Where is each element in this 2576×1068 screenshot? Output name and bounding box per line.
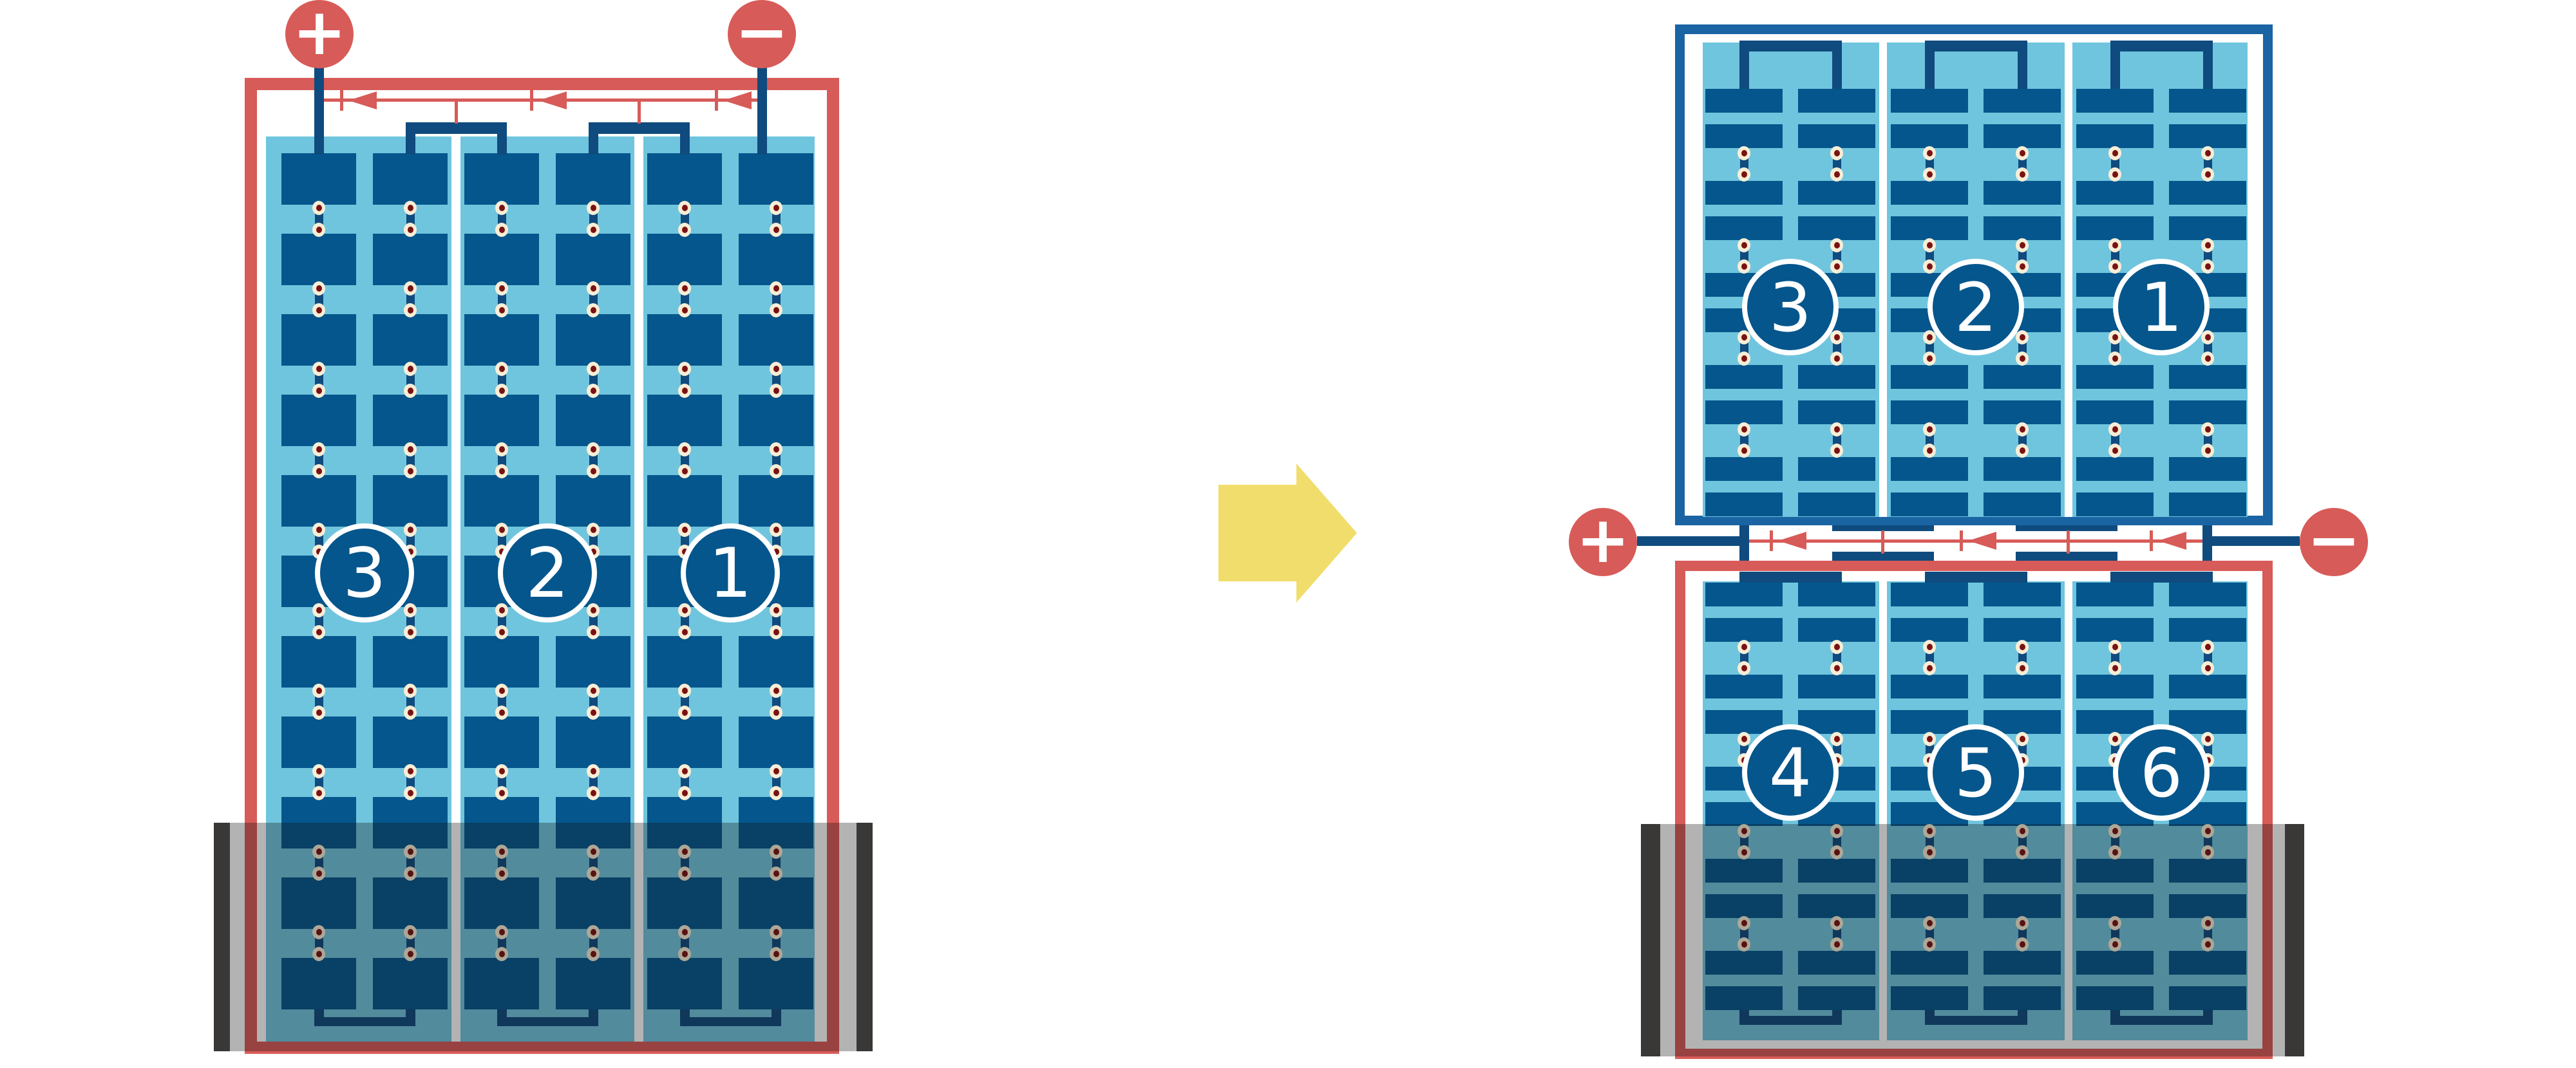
solar-cell <box>556 234 630 285</box>
solder-dot-core <box>682 205 688 211</box>
solder-dot-core <box>773 688 779 694</box>
solder-dot-core <box>1927 334 1933 341</box>
string-number-label: 2 <box>526 539 569 608</box>
solder-dot-core <box>1741 426 1747 433</box>
solder-dot-core <box>591 688 596 694</box>
solder-dot-core <box>2205 263 2211 270</box>
solder-dot-core <box>2112 355 2118 362</box>
solder-dot-core <box>316 709 322 716</box>
solder-dot-core <box>2205 242 2211 248</box>
solder-dot-core <box>591 227 596 233</box>
solder-dot-core <box>1927 263 1933 270</box>
string-link-leg <box>406 134 415 155</box>
solder-dot-core <box>591 205 596 211</box>
bypass-diode-icon-bar <box>530 90 533 111</box>
solder-dot-core <box>591 527 596 533</box>
string-circle: 3 <box>315 523 414 623</box>
solder-dot-core <box>499 527 505 533</box>
half-cell <box>1705 365 1783 389</box>
solar-cell <box>556 314 630 366</box>
solar-panel-shading-diagram: +−321321456+− <box>0 0 2576 1068</box>
solder-dot-core <box>2112 665 2118 671</box>
solder-dot-core <box>591 366 596 372</box>
string-number-label: 3 <box>1769 274 1812 341</box>
half-cell <box>2169 618 2246 642</box>
solder-dot-core <box>2205 665 2211 671</box>
solar-cell <box>647 475 722 527</box>
half-cell <box>1705 216 1783 240</box>
solder-dot-core <box>499 227 505 233</box>
string-number-label: 3 <box>343 539 386 608</box>
solder-dot-core <box>499 366 505 372</box>
shade-edge-bar <box>214 823 230 1051</box>
solder-dot-core <box>682 709 688 716</box>
solder-dot-core <box>682 790 688 796</box>
solder-dot-core <box>2020 334 2025 341</box>
solar-cell <box>281 717 356 768</box>
half-cell <box>1891 583 1968 606</box>
half-cell <box>1705 618 1783 642</box>
solder-dot-core <box>682 468 688 474</box>
solder-dot-core <box>773 768 779 774</box>
solder-dot-core <box>591 790 596 796</box>
solder-dot-core <box>408 768 413 774</box>
solder-dot-core <box>1834 171 1840 178</box>
half-cell <box>1705 583 1783 606</box>
solder-dot-core <box>316 307 322 314</box>
solder-dot-core <box>408 709 413 716</box>
solder-dot-core <box>1741 665 1747 671</box>
solar-cell <box>647 153 722 205</box>
solder-dot-core <box>499 388 505 394</box>
solar-cell <box>739 395 813 446</box>
string-top-link-leg <box>1832 52 1842 89</box>
solar-cell <box>281 636 356 688</box>
negative-terminal-icon: − <box>728 0 796 68</box>
solder-dot-core <box>316 768 322 774</box>
solder-dot-core <box>2205 334 2211 341</box>
half-cell <box>2076 583 2154 606</box>
half-cell <box>1891 124 1968 148</box>
solder-dot-core <box>2112 736 2118 742</box>
solder-dot-core <box>682 607 688 614</box>
half-cell <box>1705 492 1783 516</box>
half-cell <box>1891 618 1968 642</box>
string-circle: 1 <box>681 523 780 623</box>
half-cell <box>2076 181 2154 205</box>
positive-wire <box>1637 536 1740 546</box>
half-cell <box>1798 400 1875 424</box>
solder-dot-core <box>408 366 413 372</box>
string-circle: 6 <box>2113 724 2210 821</box>
half-cell <box>1705 89 1783 113</box>
negative-terminal-icon-label: − <box>735 0 789 64</box>
half-cell <box>1798 216 1875 240</box>
solder-dot-core <box>2020 171 2025 178</box>
bypass-diode-icon-bar <box>1960 530 1963 551</box>
solder-dot-core <box>2020 644 2025 650</box>
solder-dot-core <box>682 227 688 233</box>
solder-dot-core <box>408 468 413 474</box>
solar-cell <box>739 636 813 688</box>
solder-dot-core <box>408 607 413 614</box>
solder-dot-core <box>316 629 322 635</box>
solder-dot-core <box>682 285 688 292</box>
solar-cell <box>647 636 722 688</box>
bypass-diode-icon-triangle <box>2158 532 2186 550</box>
solder-dot-core <box>773 307 779 314</box>
solder-dot-core <box>2112 263 2118 270</box>
bypass-diode-icon-triangle <box>1968 532 1996 550</box>
positive-wire <box>314 64 324 155</box>
solar-cell <box>281 234 356 285</box>
solder-dot-core <box>316 790 322 796</box>
half-cell <box>2169 457 2246 481</box>
solder-dot-core <box>499 688 505 694</box>
half-cell <box>1705 457 1783 481</box>
diode-tap <box>638 102 641 124</box>
solder-dot-core <box>773 388 779 394</box>
solder-dot-core <box>408 227 413 233</box>
string-circle: 1 <box>2113 259 2210 355</box>
string-link-leg <box>589 134 598 155</box>
string-circle: 5 <box>1927 724 2024 821</box>
string-separator <box>2065 42 2072 517</box>
bypass-diode-icon-bar <box>1770 530 1773 551</box>
solder-dot-core <box>591 468 596 474</box>
solder-dot-core <box>1834 263 1840 270</box>
half-cell <box>1798 675 1875 698</box>
solar-cell <box>373 636 448 688</box>
solder-dot-core <box>773 446 779 453</box>
solder-dot-core <box>682 527 688 533</box>
half-cell <box>2169 124 2246 148</box>
bypass-diode-icon-triangle <box>1778 532 1806 550</box>
solder-dot-core <box>682 768 688 774</box>
string-link-leg <box>497 134 507 155</box>
solder-dot-core <box>591 388 596 394</box>
string-number-label: 6 <box>2140 740 2183 807</box>
solder-dot-core <box>773 709 779 716</box>
solder-dot-core <box>591 709 596 716</box>
half-cell <box>1984 457 2061 481</box>
solder-dot-core <box>1834 426 1840 433</box>
half-cell <box>2076 675 2154 698</box>
solder-dot-core <box>1927 447 1933 454</box>
solar-cell <box>647 395 722 446</box>
solder-dot-core <box>682 388 688 394</box>
solar-cell <box>281 395 356 446</box>
solder-dot-core <box>1927 150 1933 156</box>
solder-dot-core <box>591 307 596 314</box>
solar-cell <box>739 475 813 527</box>
solder-dot-core <box>2020 355 2025 362</box>
half-cell <box>1798 618 1875 642</box>
half-cell <box>1705 675 1783 698</box>
solder-dot-core <box>1741 171 1747 178</box>
positive-terminal-icon-label: + <box>1576 508 1630 572</box>
solder-dot-core <box>1927 644 1933 650</box>
solder-dot-core <box>1834 242 1840 248</box>
diode-tap <box>2067 530 2070 554</box>
solder-dot-core <box>773 285 779 292</box>
solar-cell <box>464 475 539 527</box>
solder-dot-core <box>1741 242 1747 248</box>
half-cell <box>2169 675 2246 698</box>
solder-dot-core <box>316 468 322 474</box>
half-cell <box>2076 400 2154 424</box>
solder-dot-core <box>1834 447 1840 454</box>
solder-dot-core <box>408 446 413 453</box>
solder-dot-core <box>2205 150 2211 156</box>
half-cell <box>1984 583 2061 606</box>
solder-dot-core <box>591 446 596 453</box>
solder-dot-core <box>773 629 779 635</box>
half-cell <box>1984 675 2061 698</box>
solder-dot-core <box>316 285 322 292</box>
string-top-link-leg <box>1739 52 1749 89</box>
solder-dot-core <box>1741 263 1747 270</box>
half-cell <box>2076 124 2154 148</box>
half-cell <box>1984 216 2061 240</box>
half-cell <box>1705 400 1783 424</box>
solar-cell <box>373 153 448 205</box>
solder-dot-core <box>773 227 779 233</box>
string-number-label: 1 <box>708 539 752 608</box>
bypass-diode-icon-bar <box>715 90 718 111</box>
solder-dot-core <box>2205 644 2211 650</box>
string-circle: 4 <box>1742 724 1839 821</box>
shade-edge-bar <box>2285 824 2304 1056</box>
solder-dot-core <box>2020 263 2025 270</box>
solder-dot-core <box>1927 736 1933 742</box>
solar-cell <box>647 314 722 366</box>
string-circle: 3 <box>1742 259 1839 355</box>
solar-cell <box>739 314 813 366</box>
solder-dot-core <box>2205 355 2211 362</box>
solder-dot-core <box>1834 736 1840 742</box>
solder-dot-core <box>499 446 505 453</box>
solder-dot-core <box>773 607 779 614</box>
solder-dot-core <box>1741 150 1747 156</box>
shade-overlay <box>214 823 873 1051</box>
half-cell <box>1891 216 1968 240</box>
solder-dot-core <box>1927 171 1933 178</box>
half-cell <box>1891 89 1968 113</box>
solar-cell <box>281 314 356 366</box>
solder-dot-core <box>682 446 688 453</box>
solar-cell <box>556 395 630 446</box>
solder-dot-core <box>773 205 779 211</box>
solder-dot-core <box>1741 447 1747 454</box>
positive-terminal-icon: + <box>285 0 354 68</box>
solder-dot-core <box>316 205 322 211</box>
half-cell <box>2076 89 2154 113</box>
half-cell <box>1984 400 2061 424</box>
half-cell <box>1984 365 2061 389</box>
string-top-link-bar <box>1925 572 2027 583</box>
solder-dot-core <box>316 527 322 533</box>
string-top-link-bar <box>2110 41 2213 52</box>
solder-dot-core <box>2112 242 2118 248</box>
solder-dot-core <box>1741 644 1747 650</box>
solder-dot-core <box>1927 426 1933 433</box>
solar-cell <box>739 153 813 205</box>
solder-dot-core <box>773 527 779 533</box>
solar-cell <box>647 234 722 285</box>
solder-dot-core <box>2112 426 2118 433</box>
solder-dot-core <box>408 307 413 314</box>
junction-bus <box>1739 525 1749 561</box>
half-cell <box>1984 89 2061 113</box>
negative-wire <box>2212 536 2300 546</box>
string-link-bar <box>589 122 690 134</box>
solar-cell <box>373 395 448 446</box>
half-cell <box>1705 181 1783 205</box>
solar-cell <box>464 234 539 285</box>
half-cell <box>2076 216 2154 240</box>
solar-cell <box>647 717 722 768</box>
string-number-label: 2 <box>1955 274 1997 341</box>
solder-dot-core <box>499 709 505 716</box>
solder-dot-core <box>682 629 688 635</box>
solar-cell <box>373 717 448 768</box>
negative-terminal-icon: − <box>2300 508 2368 576</box>
solar-cell <box>373 234 448 285</box>
half-cell <box>2169 400 2246 424</box>
transform-arrow-icon <box>1218 464 1357 603</box>
half-cell <box>2169 492 2246 516</box>
string-separator <box>1879 42 1887 517</box>
solder-dot-core <box>1741 736 1747 742</box>
solder-dot-core <box>408 205 413 211</box>
negative-wire <box>757 64 767 155</box>
solder-dot-core <box>2205 426 2211 433</box>
solar-cell <box>464 153 539 205</box>
solder-dot-core <box>682 366 688 372</box>
solder-dot-core <box>1834 334 1840 341</box>
half-cell <box>1798 89 1875 113</box>
solar-cell <box>464 717 539 768</box>
half-cell <box>2169 583 2246 606</box>
solder-dot-core <box>316 607 322 614</box>
solder-dot-core <box>316 688 322 694</box>
half-cell <box>1798 583 1875 606</box>
solder-dot-core <box>499 607 505 614</box>
solder-dot-core <box>1834 355 1840 362</box>
half-cell <box>1984 492 2061 516</box>
string-top-link-bar <box>1925 41 2027 52</box>
half-cell <box>2076 457 2154 481</box>
string-circle: 2 <box>498 523 597 623</box>
half-cell <box>2076 365 2154 389</box>
string-link-leg <box>680 134 690 155</box>
half-cell <box>2169 181 2246 205</box>
junction-bus <box>2202 525 2212 561</box>
solder-dot-core <box>316 388 322 394</box>
shade-edge-bar <box>857 823 873 1051</box>
solder-dot-core <box>591 285 596 292</box>
solder-dot-core <box>1927 355 1933 362</box>
half-cell <box>1798 457 1875 481</box>
string-number-label: 1 <box>2140 274 2183 341</box>
solder-dot-core <box>499 629 505 635</box>
half-cell <box>1891 457 1968 481</box>
string-circle: 2 <box>1927 259 2024 355</box>
solar-cell <box>373 475 448 527</box>
solder-dot-core <box>1741 334 1747 341</box>
string-top-link-leg <box>2203 52 2213 89</box>
solder-dot-core <box>773 790 779 796</box>
solar-cell <box>739 234 813 285</box>
solar-cell <box>556 153 630 205</box>
solder-dot-core <box>2205 736 2211 742</box>
solder-dot-core <box>1741 355 1747 362</box>
solder-dot-core <box>2020 150 2025 156</box>
half-cell <box>1891 181 1968 205</box>
solder-dot-core <box>316 446 322 453</box>
half-cell <box>1798 124 1875 148</box>
solar-cell <box>373 314 448 366</box>
string-top-link-bar <box>1739 41 1842 52</box>
solder-dot-core <box>2020 665 2025 671</box>
solder-dot-core <box>2020 426 2025 433</box>
half-cell <box>1891 492 1968 516</box>
half-cell <box>2076 492 2154 516</box>
solder-dot-core <box>316 227 322 233</box>
solar-cell <box>464 314 539 366</box>
solar-cell <box>281 475 356 527</box>
solar-cell <box>281 153 356 205</box>
diode-tap <box>1881 530 1884 554</box>
half-cell <box>2169 89 2246 113</box>
solar-cell <box>739 717 813 768</box>
solder-dot-core <box>2020 242 2025 248</box>
solder-dot-core <box>2205 447 2211 454</box>
string-number-label: 5 <box>1955 740 1997 807</box>
solder-dot-core <box>499 790 505 796</box>
diode-tap <box>455 102 458 124</box>
bypass-diode-icon-bar <box>2150 530 2153 551</box>
solder-dot-core <box>2205 171 2211 178</box>
half-cell <box>1798 492 1875 516</box>
half-cell <box>1798 181 1875 205</box>
solder-dot-core <box>1834 150 1840 156</box>
half-cell <box>2169 216 2246 240</box>
half-cell <box>1705 124 1783 148</box>
solder-dot-core <box>2112 150 2118 156</box>
string-link-bar <box>406 122 507 134</box>
positive-terminal-icon-label: + <box>292 0 346 64</box>
half-cell <box>2076 618 2154 642</box>
string-top-link-bar <box>1739 572 1842 583</box>
solder-dot-core <box>1834 644 1840 650</box>
string-top-link-leg <box>1925 52 1935 89</box>
solder-dot-core <box>2112 644 2118 650</box>
solar-cell <box>464 395 539 446</box>
solder-dot-core <box>591 629 596 635</box>
solder-dot-core <box>499 205 505 211</box>
half-cell <box>1984 618 2061 642</box>
shade-edge-bar <box>1641 824 1660 1056</box>
solder-dot-core <box>773 366 779 372</box>
solder-dot-core <box>408 388 413 394</box>
solder-dot-core <box>2112 447 2118 454</box>
half-cell <box>1891 365 1968 389</box>
solder-dot-core <box>499 468 505 474</box>
half-cell <box>1984 181 2061 205</box>
solder-dot-core <box>682 307 688 314</box>
